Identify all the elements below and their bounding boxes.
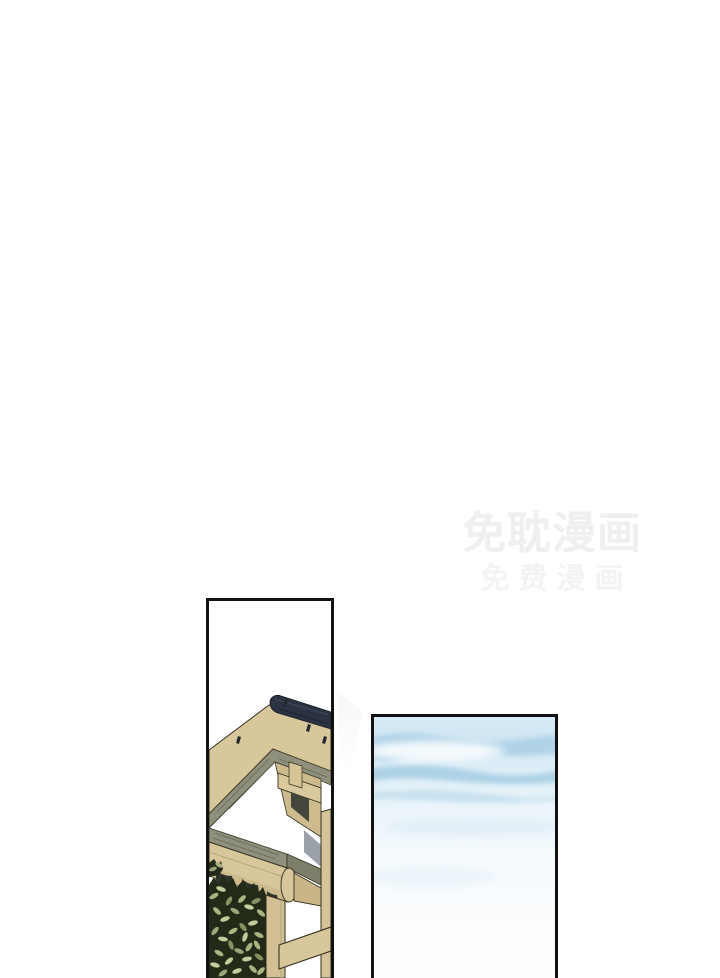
sky-illustration (374, 717, 555, 978)
faint-cloud-wedge (336, 690, 362, 802)
bracket (289, 762, 302, 788)
watermark-title: 免耽漫画 (452, 512, 652, 556)
foliage-mass (209, 875, 266, 978)
comic-panel-sky (371, 714, 558, 978)
comic-reader-page: { "page": { "type": "webtoon-comic-page"… (0, 0, 720, 978)
site-watermark: 免耽漫画 免费漫画 (452, 512, 652, 594)
comic-panel-building (206, 598, 334, 978)
watermark-subtitle: 免费漫画 (452, 565, 652, 594)
building-eaves-illustration (209, 601, 331, 978)
